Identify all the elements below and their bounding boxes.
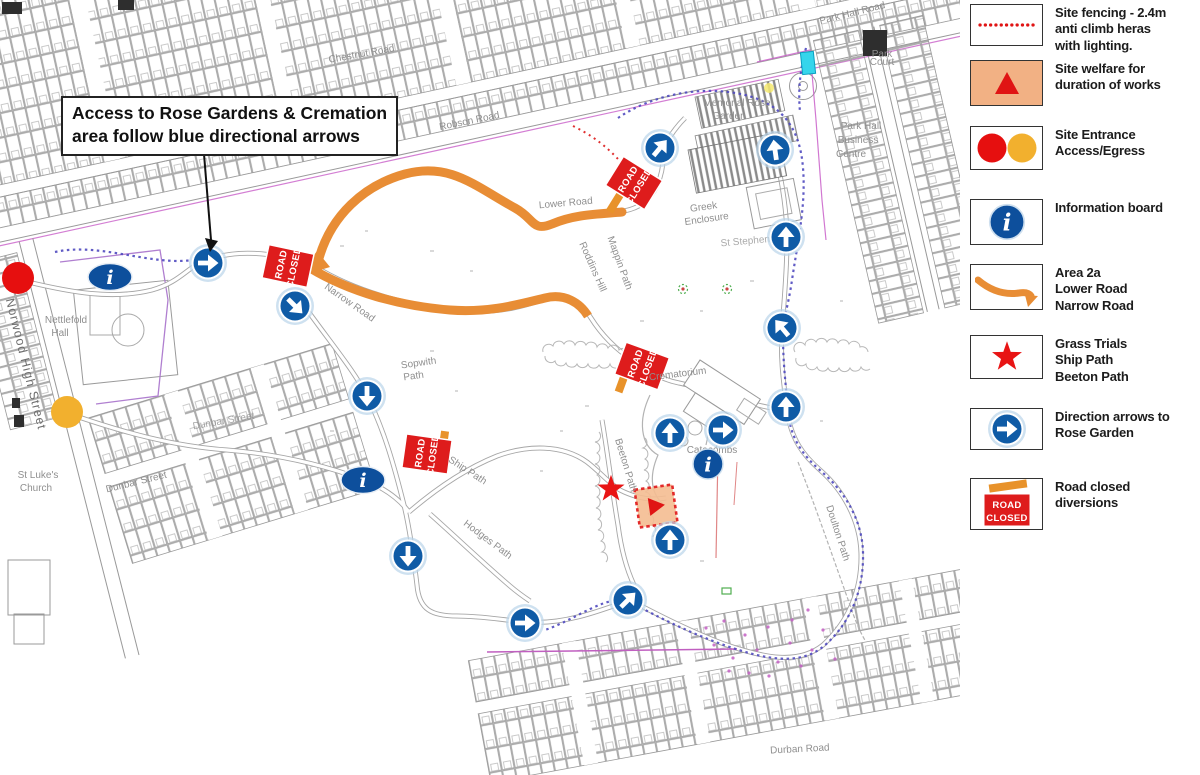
svg-text:Park Hall: Park Hall <box>841 121 882 132</box>
legend-label: with lighting. <box>1055 38 1166 54</box>
legend-item-road-closed: ROAD CLOSED Road closed diversions <box>970 478 1130 530</box>
legend-label: Narrow Road <box>1055 298 1134 314</box>
info-board-1 <box>88 264 132 291</box>
legend-label: Direction arrows to <box>1055 409 1170 425</box>
fence-dotted-line-icon <box>976 15 1038 35</box>
legend-label: Access/Egress <box>1055 143 1145 159</box>
legend-item-area-2a: Area 2a Lower Road Narrow Road <box>970 264 1134 314</box>
red-star-icon <box>985 338 1029 376</box>
information-board-symbol <box>970 199 1043 245</box>
housing-band-south <box>468 566 960 775</box>
info-board-3 <box>693 449 723 479</box>
legend-label: duration of works <box>1055 77 1161 93</box>
svg-text:Ship Path: Ship Path <box>446 454 488 487</box>
site-entrance-symbol <box>970 126 1043 170</box>
svg-text:St Luke's: St Luke's <box>18 470 59 481</box>
welfare-triangle-icon <box>991 68 1023 98</box>
site-fencing-symbol <box>970 4 1043 46</box>
legend-label: Road closed <box>1055 479 1130 495</box>
svg-text:Hall: Hall <box>51 328 68 339</box>
housing-block-dunbar <box>88 343 376 563</box>
legend-label: Information board <box>1055 200 1163 216</box>
traffic-management-plan: i i ROAD CLOSED <box>0 0 1200 775</box>
svg-text:Durban Road: Durban Road <box>770 742 830 756</box>
svg-text:Path: Path <box>403 370 425 384</box>
grass-trials-symbol <box>970 335 1043 379</box>
legend-label: anti climb heras <box>1055 21 1166 37</box>
legend-label: Grass Trials <box>1055 336 1129 352</box>
svg-text:Centre: Centre <box>836 149 866 160</box>
orange-route-icon <box>975 266 1039 308</box>
svg-text:Garden: Garden <box>712 111 745 122</box>
road-closed-symbol: ROAD CLOSED <box>970 478 1043 530</box>
legend-label: Ship Path <box>1055 352 1129 368</box>
legend-label: Beeton Path <box>1055 369 1129 385</box>
annotation-line-2: area follow blue directional arrows <box>72 125 387 148</box>
svg-text:Mappin Path: Mappin Path <box>605 235 635 292</box>
yellow-marker <box>764 83 774 93</box>
road-closed-sign-icon: ROAD CLOSED <box>975 479 1039 529</box>
legend-label: diversions <box>1055 495 1130 511</box>
info-icon <box>985 202 1029 242</box>
legend-label: Site Entrance <box>1055 127 1145 143</box>
site-entrance-yellow <box>51 396 83 428</box>
svg-text:CLOSED: CLOSED <box>986 513 1027 524</box>
info-board-2 <box>341 467 385 494</box>
site-welfare-symbol <box>970 60 1043 106</box>
site-entrance-red <box>2 262 34 294</box>
area-2a-symbol <box>970 264 1043 310</box>
legend-item-site-fencing: Site fencing - 2.4m anti climb heras wit… <box>970 4 1166 54</box>
legend-label: Site fencing - 2.4m <box>1055 5 1166 21</box>
legend-label: Rose Garden <box>1055 425 1170 441</box>
svg-text:Lower Road: Lower Road <box>538 196 593 212</box>
svg-text:ROAD: ROAD <box>992 500 1021 511</box>
legend-label: Site welfare for <box>1055 61 1161 77</box>
legend-item-information-board: Information board <box>970 199 1163 245</box>
legend-item-site-entrance: Site Entrance Access/Egress <box>970 126 1145 170</box>
svg-text:Doulton Path: Doulton Path <box>823 504 851 562</box>
annotation-line-1: Access to Rose Gardens & Cremation <box>72 102 387 125</box>
blue-arrow-icon <box>985 409 1029 449</box>
svg-text:Sopwith: Sopwith <box>400 356 437 372</box>
svg-text:Court: Court <box>870 57 895 68</box>
svg-text:Business: Business <box>838 135 879 146</box>
entrance-circles-icon <box>975 131 1039 165</box>
direction-arrow-symbol <box>970 408 1043 450</box>
legend-item-grass-trials: Grass Trials Ship Path Beeton Path <box>970 335 1129 385</box>
svg-text:Nettlefold: Nettlefold <box>45 315 87 326</box>
access-annotation-box: Access to Rose Gardens & Cremation area … <box>61 96 398 156</box>
legend-label: Area 2a <box>1055 265 1134 281</box>
svg-text:Memorial Rose: Memorial Rose <box>703 98 771 109</box>
legend-item-site-welfare: Site welfare for duration of works <box>970 60 1161 106</box>
legend-label: Lower Road <box>1055 281 1134 297</box>
cyan-marker-building <box>800 51 815 74</box>
map-legend: Site fencing - 2.4m anti climb heras wit… <box>970 0 1200 775</box>
svg-text:Roddins Hill: Roddins Hill <box>576 240 608 293</box>
legend-item-direction-arrows: Direction arrows to Rose Garden <box>970 408 1170 450</box>
site-welfare-unit <box>635 485 678 528</box>
svg-text:Church: Church <box>20 483 52 494</box>
svg-text:Hodges Path: Hodges Path <box>461 518 514 562</box>
road-closed-1 <box>261 241 315 291</box>
st-lukes-church-building <box>8 560 50 644</box>
